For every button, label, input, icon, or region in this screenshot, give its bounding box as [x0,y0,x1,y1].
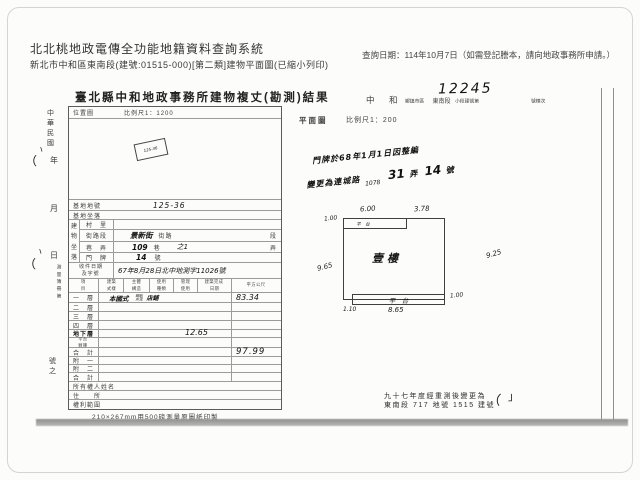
style-value: 本國式 [109,293,129,303]
scanned-query-result-page: 北北桃地政電傳全功能地籍資料查詢系統 新北市中和區東南段(建號:01515-00… [0,0,640,480]
margin-year-label: 年 [50,155,58,166]
survey-result-form: 位置圖 比例尺1：1200 125-36 基地地號 125-36 基地坐落 建 … [68,106,282,410]
dim-bottom: 8.65 [388,306,404,314]
pen-mark: （ [24,255,36,272]
margin-month-label: 月 [50,203,58,214]
village-row: 村 里 [80,220,281,229]
door-label: 門 牌 [86,253,107,262]
dim-left-upper: 1.00 [324,214,338,222]
file-label-line2: 及字號 [82,271,100,277]
location-map-area: 125-36 [69,119,281,199]
street-unit-label: 段 [270,231,277,240]
door-row: 門 牌 14 號 [80,252,281,262]
plan-label: 平面圖 [299,115,328,126]
door-unit-label: 號 [154,253,161,262]
file-number-value: 67年8月28日北中地測字11026號 [118,266,226,276]
form-title: 臺北縣中和地政事務所建物複丈(勘測)結果 [75,89,330,105]
section-name: 東南段 [433,96,451,105]
system-title: 北北桃地政電傳全功能地籍資料查詢系統 [30,40,264,57]
location-map-header: 位置圖 比例尺1：1200 [69,107,281,119]
grand-total-row: 合 計 [69,372,281,381]
village-label: 村 里 [86,220,107,229]
margin-era: 中 華 民 國 [47,108,54,142]
query-date: 查詢日期：114年10月7日（如需登記謄本，請向地政事務所申請。） [362,49,615,61]
plan-scale: 比例尺1：200 [346,115,398,125]
location-map-label: 位置圖 [73,108,94,117]
dim-bottom-left: 1.10 [343,306,356,313]
site-label: 基地坐落 [73,211,101,220]
margin-number-suffix: 號 之 [49,356,56,372]
top-terrace-label: 平 台 [356,220,370,227]
bottom-terrace-label: 平 台 [389,295,409,305]
document-subtitle: 新北市中和區東南段(建號:01515-000)[第二類]建物平面圖(已縮小列印) [30,58,329,71]
subsection-label: 小段建號第 [455,97,479,104]
door-number-value: 14 [136,253,146,262]
street-label: 街路段 [86,231,107,240]
street-row: 街路段 景新街 街路 段 [80,229,281,241]
building-location-group: 建 物 坐 落 村 里 街路段 景新街 街路 段 巷 弄 109 巷 [69,219,281,262]
owner-name-row: 所有權人姓名 [69,381,281,390]
parcel-number-value: 125-36 [153,201,186,210]
floor-row-2f: 二 層 [69,302,281,311]
floorplan-room-label: 壹樓 [372,250,402,266]
floor-row-basement: 地下層 12.65 [69,329,281,337]
floor-table-header: 項目 建築式樣 主體構造 使用種類 管理使用 建築完成日期 平方公尺 [69,278,281,292]
scan-edge-band [36,419,628,426]
file-label-line1: 收件日期 [79,264,103,270]
annex-row-1: 附 一 [69,356,281,364]
owner-address-row: 住 所 [69,390,281,399]
lane-row: 巷 弄 109 巷 之1 弄 [80,241,281,252]
lane-label: 巷 弄 [86,243,107,252]
pen-mark: （ [487,388,503,409]
floor-row-1f: 一 層 本國式 鋼筋 水泥 店鋪 83.34 [69,292,281,302]
use-value: 店鋪 [147,293,159,302]
pen-mark: 」 [508,388,519,404]
location-map-scale: 比例尺1：1200 [124,108,174,117]
file-number-row: 收件日期 及字號 67年8月28日北中地測字11026號 [69,262,281,278]
district-city: 中 和 [366,94,401,106]
lane-number-value: 109 [132,243,148,252]
site-row: 基地坐落 [69,210,281,219]
right-column-line [613,88,614,420]
annex-row-2: 附 二 [69,364,281,372]
margin-day-label: 日 [50,250,58,261]
dim-top-right: 3.78 [414,205,430,214]
lane-sub-value: 之1 [177,242,188,252]
street-name-value: 景新街 [130,230,153,241]
area-value: 83.34 [236,293,259,302]
pen-mark: （ [25,152,37,169]
parcel-number-row: 基地地號 125-36 [69,199,281,210]
parcel-location-stamp: 125-36 [134,138,169,161]
parcel-number-label: 基地地號 [73,201,101,210]
floor-row-terrace-arcade: 平台 騎樓 [69,337,281,347]
lane-unit-label: 弄 [270,243,277,252]
rights-scope-row: 權利範圍 [69,399,281,409]
floorplan-top-terrace: 平 台 [343,218,407,229]
margin-book-label: 測 量 簿 冊 第 [57,263,62,287]
floorplan-bottom-terrace: 平 台 [352,294,445,305]
district-line: 中 和 鄉鎮市區 東南段 小段建號第 號棟次 [366,94,640,106]
structure-value: 鋼筋 水泥 [135,294,142,301]
district-unit-label: 鄉鎮市區 [405,97,424,104]
dim-top-left: 6.00 [360,204,376,213]
floor-row-subtotal: 合 計 97.99 [69,347,281,356]
building-location-group-label: 建 物 坐 落 [69,220,80,262]
floor-row-3f: 三 層 [69,311,281,320]
resurvey-note-line2: 東南段 717 地號 1515 建號 [384,400,495,410]
dim-right-lower: 1.00 [450,291,464,299]
serial-suffix-label: 號棟次 [531,97,545,104]
right-column-line [601,88,602,420]
lane-unit-mid: 巷 [154,243,161,252]
floor-row-4f: 四 層 [69,320,281,329]
area-value: 12.65 [185,328,208,337]
street-print-label: 街路 [159,231,173,240]
